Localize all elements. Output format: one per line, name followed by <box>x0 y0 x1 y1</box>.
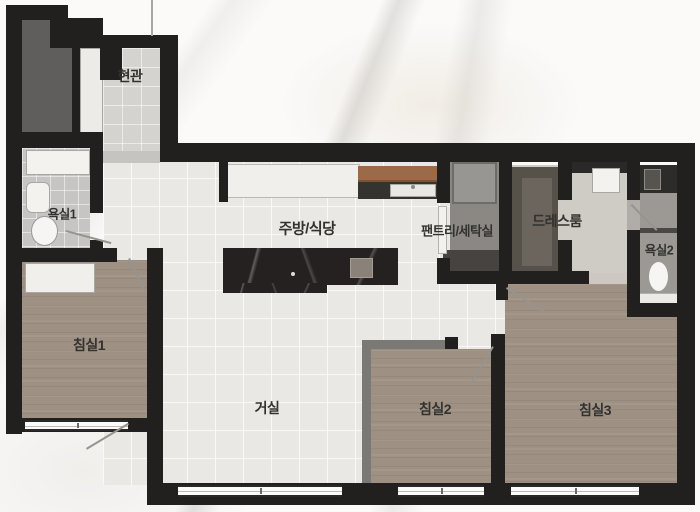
bathroom2-label: 욕실2 <box>645 240 673 259</box>
wall-closet-step <box>50 18 103 48</box>
bath2-partition-line <box>640 228 677 233</box>
bedroom2-window <box>398 485 484 497</box>
kitchen-counter <box>227 164 360 198</box>
living-room-label: 거실 <box>255 398 280 418</box>
wall-left-outer <box>6 5 22 434</box>
bedroom1-label: 침실1 <box>73 335 105 355</box>
wall-main-top <box>160 143 695 162</box>
kitchen-island-extension <box>223 283 327 293</box>
island-sink <box>350 258 373 278</box>
bedroom3-label: 침실3 <box>579 400 611 420</box>
bedroom-dresser <box>25 263 95 293</box>
toilet-2 <box>648 261 669 292</box>
wall-bath1-right-upper <box>90 148 103 213</box>
bedroom2-left-partition <box>362 340 371 485</box>
wall-bath1-bedroom1 <box>6 248 117 262</box>
closet-room-lower <box>22 44 72 132</box>
wall-bedroom2-bedroom3 <box>491 334 505 505</box>
kitchen-dining-label: 주방/식당 <box>279 218 336 239</box>
wall-bath2-left-lower <box>627 230 640 307</box>
wall-pantry-left-upper <box>437 153 450 203</box>
wash-basin <box>26 182 50 213</box>
pantry-laundry-label: 팬트리/세탁실 <box>421 221 493 240</box>
top-boundary-line <box>151 0 153 36</box>
bathroom2-door-threshold <box>627 200 640 230</box>
wall-right-outer <box>677 150 695 505</box>
wall-bath2-left-upper <box>627 153 640 200</box>
wall-closet-bath-divider <box>6 132 103 148</box>
living-room-window <box>178 485 342 497</box>
bedroom1-window <box>25 420 128 431</box>
dressroom-opening-threshold <box>589 273 627 284</box>
entrance-label: 현관 <box>118 66 143 86</box>
bathroom1-label: 욕실1 <box>48 204 76 223</box>
bedroom2-top-partition <box>362 340 445 349</box>
washing-machine <box>452 162 497 204</box>
wall-pantry-right <box>499 153 512 273</box>
island-cooktop-dot <box>291 272 295 276</box>
bath-vanity <box>26 150 90 175</box>
wall-dress-stub-lower <box>558 240 572 273</box>
wall-dress-stub-upper <box>558 153 572 200</box>
wall-bedroom1-east <box>147 248 163 505</box>
drawer-unit <box>592 168 620 193</box>
closet-room <box>22 20 50 46</box>
bedroom2-label: 침실2 <box>419 399 451 419</box>
wall-bath2-bottom <box>627 303 682 317</box>
apartment-floorplan: 현관 욕실1 주방/식당 팬트리/세탁실 드레스룸 욕실2 침실1 거실 침실2… <box>0 0 700 512</box>
bedroom3-window <box>511 485 639 497</box>
counter-sink-faucet <box>411 185 415 189</box>
wood-counter <box>358 166 440 182</box>
wall-kitchen-stub <box>219 162 228 202</box>
entrance-threshold <box>103 151 160 163</box>
dressroom-label: 드레스룸 <box>532 211 582 231</box>
pantry-cabinet <box>443 250 500 272</box>
bath2-sink <box>644 169 661 190</box>
